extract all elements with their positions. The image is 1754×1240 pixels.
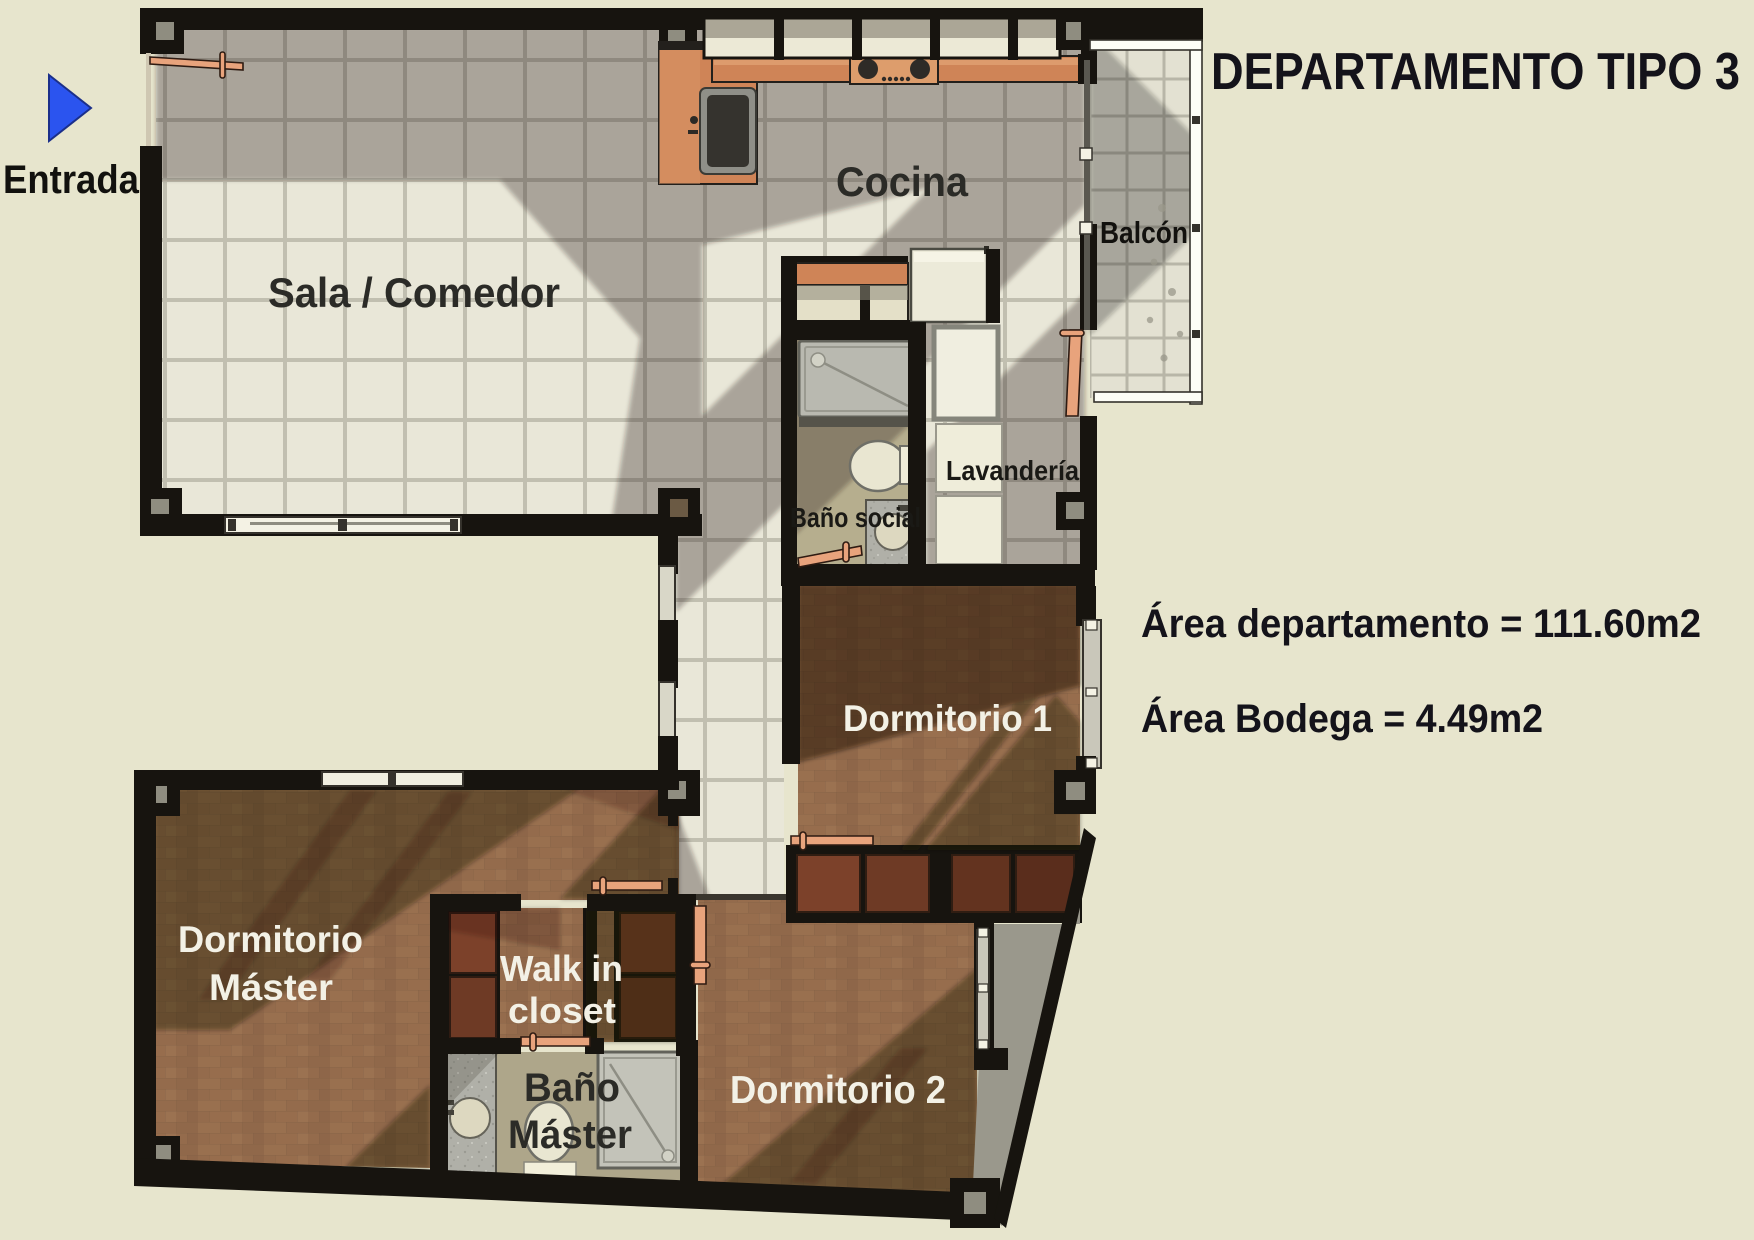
svg-text:Área Bodega = 4.49m2: Área Bodega = 4.49m2 [1141, 696, 1543, 741]
svg-text:Dormitorio 1: Dormitorio 1 [843, 698, 1052, 739]
svg-text:Lavandería: Lavandería [946, 455, 1079, 486]
svg-text:Máster: Máster [209, 967, 333, 1008]
svg-text:Balcón: Balcón [1100, 215, 1188, 250]
svg-text:DEPARTAMENTO TIPO 3: DEPARTAMENTO TIPO 3 [1211, 43, 1740, 101]
svg-text:Sala / Comedor: Sala / Comedor [268, 269, 560, 316]
svg-text:Entrada: Entrada [3, 158, 140, 202]
svg-text:Cocina: Cocina [836, 158, 969, 205]
svg-text:Dormitorio 2: Dormitorio 2 [730, 1069, 946, 1112]
svg-text:Walk in: Walk in [500, 948, 623, 989]
svg-text:Baño: Baño [524, 1066, 620, 1110]
svg-text:Área departamento = 111.60m2: Área departamento = 111.60m2 [1141, 601, 1701, 646]
svg-text:Máster: Máster [508, 1113, 632, 1157]
svg-text:Baño social: Baño social [790, 502, 921, 533]
svg-text:closet: closet [508, 990, 616, 1031]
svg-text:Dormitorio: Dormitorio [178, 919, 363, 960]
